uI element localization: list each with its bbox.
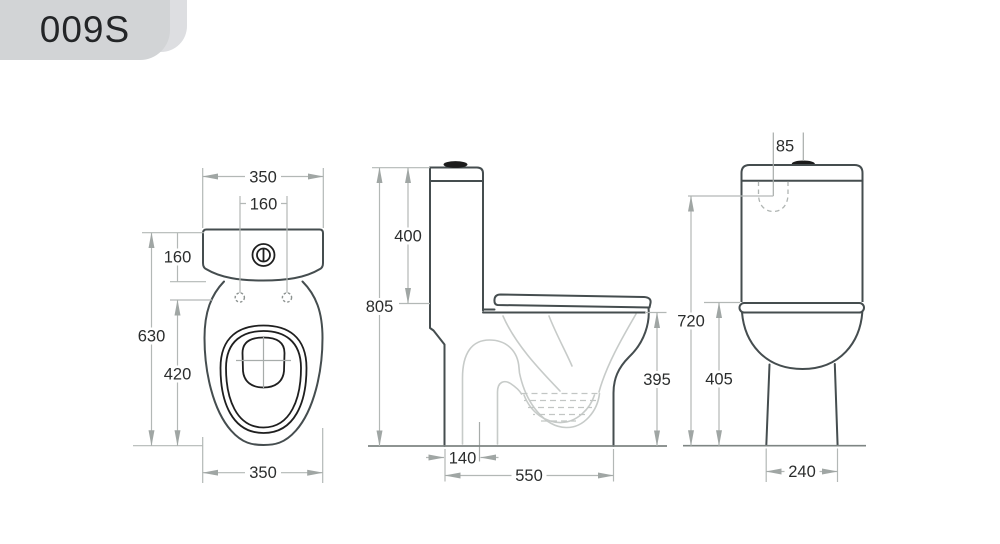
dim-top-hole-spacing-label: 160 [250,196,278,214]
bowl-funnel-left-line [503,316,560,391]
side-flush-button-icon [444,161,468,168]
seat-bolt-hole-right-icon [282,293,291,302]
technical-drawing-canvas: 350 160 160 630 420 350 [0,0,1000,544]
side-seat-outline [494,295,650,308]
side-back-pedestal-outline [430,168,445,447]
trap-outer-line [463,340,600,444]
front-pedestal-left-line [766,365,769,446]
side-view-drawing: 400 805 395 140 550 [362,161,675,485]
dim-top-bowl-width-label: 350 [249,464,277,482]
front-cistern-outline [742,165,863,302]
dim-front-base-width-label: 240 [788,463,816,481]
dim-top-tank-width-label: 350 [249,169,277,187]
front-view-drawing: 85 720 405 240 [674,133,867,483]
dim-front-bowl-height-label: 405 [705,371,733,389]
bowl-funnel-right-line [549,316,572,366]
spec-sheet: 009S [0,0,1000,544]
side-cistern-outline [430,168,483,311]
front-seat-band-outline [740,303,865,313]
top-view-drawing: 350 160 160 630 420 350 [133,168,323,483]
front-bowl-outline [742,313,862,370]
bowl-inner-wall-line [599,314,636,392]
dim-side-tank-height-label: 400 [394,228,422,246]
front-pedestal-right-line [835,364,838,446]
dim-side-overall-height-label: 805 [366,298,394,316]
dim-side-trap-setout-label: 140 [449,450,477,468]
seat-bolt-hole-left-icon [235,293,244,302]
dim-front-inlet-height-label: 720 [677,313,705,331]
dim-side-overall-depth-label: 550 [515,467,543,485]
dim-top-overall-length-label: 630 [138,328,166,346]
dim-front-inlet-offset-label: 85 [776,138,794,156]
dim-top-tank-depth-label: 160 [164,249,192,267]
dim-top-bowl-length-label: 420 [164,366,192,384]
trap-inner-line [498,382,522,444]
dim-side-rim-height-label: 395 [643,371,671,389]
